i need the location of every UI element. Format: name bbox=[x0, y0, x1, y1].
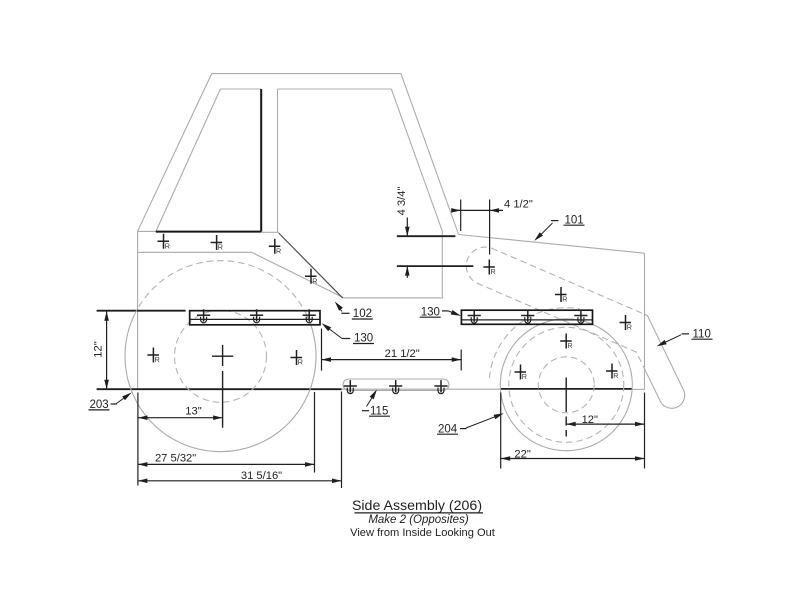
svg-text:115: 115 bbox=[370, 405, 388, 417]
svg-text:R: R bbox=[276, 246, 281, 255]
svg-text:4 3/4": 4 3/4" bbox=[396, 187, 408, 216]
svg-text:204: 204 bbox=[438, 423, 458, 435]
svg-text:Side Assembly (206): Side Assembly (206) bbox=[352, 498, 482, 514]
svg-text:31 5/16": 31 5/16" bbox=[241, 470, 282, 482]
svg-text:R: R bbox=[567, 341, 572, 350]
svg-text:101: 101 bbox=[565, 214, 584, 226]
svg-text:22": 22" bbox=[514, 448, 530, 460]
svg-text:R: R bbox=[218, 243, 223, 252]
svg-text:R: R bbox=[522, 372, 527, 381]
svg-text:102: 102 bbox=[353, 308, 372, 320]
svg-text:View from Inside Looking Out: View from Inside Looking Out bbox=[350, 527, 495, 539]
svg-text:Make 2 (Opposites): Make 2 (Opposites) bbox=[368, 514, 469, 526]
svg-text:130: 130 bbox=[421, 306, 440, 318]
svg-text:R: R bbox=[155, 355, 160, 364]
svg-text:12": 12" bbox=[93, 341, 105, 357]
svg-text:R: R bbox=[165, 241, 170, 250]
svg-text:110: 110 bbox=[693, 328, 711, 340]
svg-text:R: R bbox=[312, 276, 317, 285]
svg-text:13": 13" bbox=[185, 406, 201, 418]
svg-text:27 5/32": 27 5/32" bbox=[155, 452, 196, 464]
svg-text:203: 203 bbox=[90, 399, 109, 411]
svg-text:130: 130 bbox=[354, 333, 373, 345]
svg-text:21 1/2": 21 1/2" bbox=[385, 348, 420, 360]
svg-text:12": 12" bbox=[582, 414, 598, 426]
svg-text:R: R bbox=[298, 358, 303, 367]
svg-text:R: R bbox=[562, 295, 567, 304]
svg-text:R: R bbox=[491, 267, 496, 276]
svg-text:R: R bbox=[613, 371, 618, 380]
svg-text:4 1/2": 4 1/2" bbox=[504, 199, 533, 211]
svg-text:R: R bbox=[627, 323, 632, 332]
